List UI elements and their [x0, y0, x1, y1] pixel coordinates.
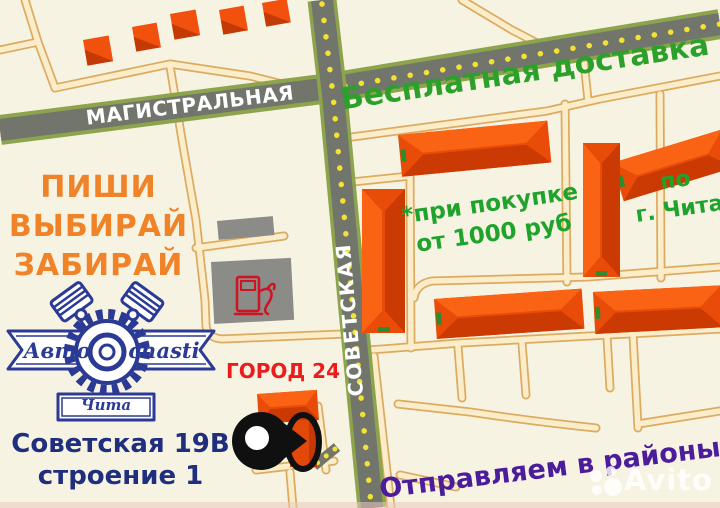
avito-watermark-text: Avito — [624, 463, 713, 497]
address-line-1: Советская 19В — [8, 428, 233, 460]
building — [362, 189, 405, 333]
house-icon — [262, 0, 291, 27]
store-address: Советская 19В строение 1 — [8, 428, 233, 492]
bottom-edge-strip — [0, 502, 720, 508]
slogan-line-2: ВЫБИРАЙ — [6, 207, 191, 246]
avito-watermark: Avito — [584, 460, 713, 500]
logo-text-chita: Чита — [60, 396, 152, 414]
house-icons — [83, 0, 291, 66]
slogan-text: ПИШИ ВЫБИРАЙ ЗАБИРАЙ — [6, 168, 191, 285]
slogan-line-1: ПИШИ — [6, 168, 191, 207]
house-icon — [219, 6, 248, 35]
logo-text-avto: Авто — [20, 338, 94, 363]
logo-text-chasti: chasti — [118, 338, 210, 363]
building — [593, 285, 720, 334]
house-icon — [132, 23, 161, 52]
avito-logo-dots — [584, 460, 624, 500]
house-icon — [83, 35, 113, 65]
slogan-line-3: ЗАБИРАЙ — [6, 246, 191, 285]
building — [583, 143, 620, 277]
map-advert: МАГИСТРАЛЬНАЯ СОВЕТСКАЯ Бесплатная доста… — [0, 0, 720, 508]
house-icon — [170, 9, 200, 39]
address-line-2: строение 1 — [8, 460, 233, 492]
store-name-label: ГОРОД 24 — [226, 360, 330, 383]
building — [434, 289, 584, 339]
